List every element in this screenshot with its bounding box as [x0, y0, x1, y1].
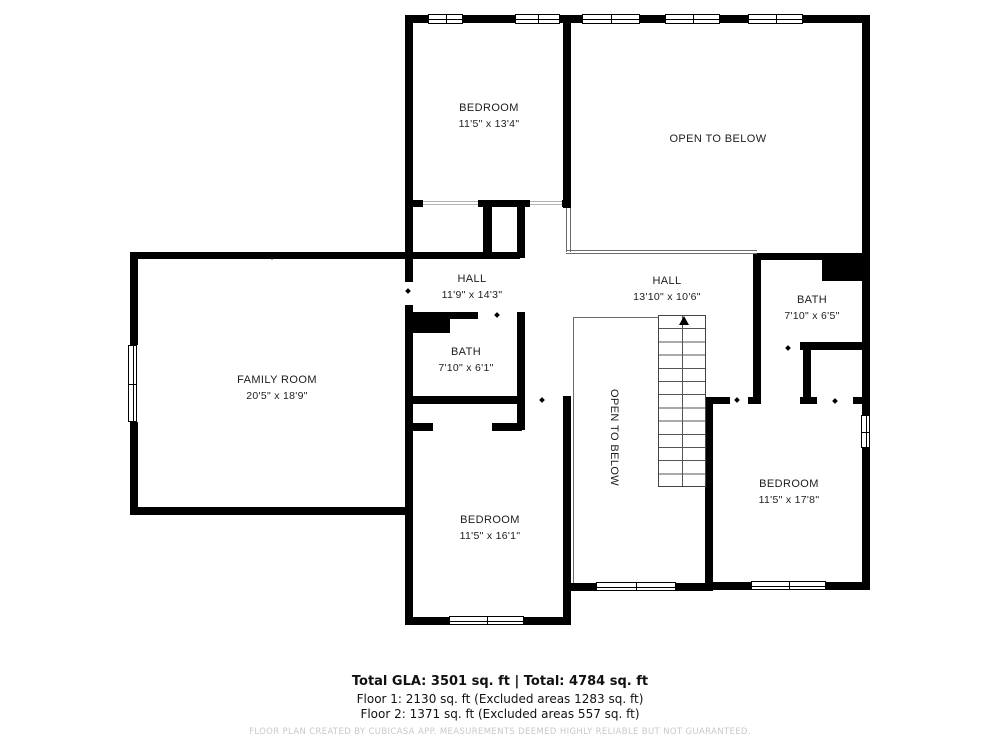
window [449, 616, 524, 625]
wall-segment [562, 200, 571, 207]
wall-segment [822, 253, 868, 281]
room-name: OPEN TO BELOW [606, 368, 622, 508]
stair-divider [682, 316, 683, 486]
wall-segment [405, 305, 413, 515]
floor-plan-canvas: BEDROOM 11'5" x 13'4" OPEN TO BELOW HALL… [0, 0, 1000, 750]
wall-segment [825, 582, 862, 590]
wall-segment [720, 15, 748, 23]
wall-segment [803, 15, 870, 23]
room-label-open-to-below-stairs: OPEN TO BELOW [606, 368, 622, 508]
staircase [658, 315, 706, 487]
door-opening [423, 201, 478, 205]
open-to-below-edge-line [566, 250, 757, 251]
wall-segment [405, 15, 413, 252]
window [596, 582, 676, 591]
wall-segment [411, 423, 433, 431]
room-label-bedroom-right: BEDROOM 11'5" x 17'8" [704, 476, 874, 508]
wall-segment [761, 253, 822, 260]
window [751, 581, 826, 590]
door-swing-marker [494, 312, 500, 318]
wall-segment [411, 396, 525, 404]
window [748, 14, 803, 24]
wall-segment [130, 422, 138, 515]
window [665, 14, 720, 24]
open-to-below-edge-line [570, 208, 571, 252]
wall-segment [492, 423, 522, 431]
door-swing-marker [785, 345, 791, 351]
door-swing-marker [539, 397, 545, 403]
window [861, 415, 870, 448]
wall-segment [130, 252, 520, 259]
room-name: OPEN TO BELOW [633, 131, 803, 147]
open-to-below-edge-line [566, 208, 567, 252]
room-label-bath-middle: BATH 7'10" x 6'1" [381, 344, 551, 376]
wall-segment [411, 312, 478, 319]
room-name: HALL [387, 271, 557, 287]
wall-segment [753, 253, 761, 400]
room-dims: 20'5" x 18'9" [192, 388, 362, 404]
open-to-below-edge-line [566, 253, 757, 254]
room-dims: 11'9" x 14'3" [387, 287, 557, 303]
room-label-open-to-below-top: OPEN TO BELOW [633, 131, 803, 147]
room-label-family-room: FAMILY ROOM 20'5" x 18'9" [192, 372, 362, 404]
wall-segment [463, 15, 515, 23]
stairs-up-arrow-icon [679, 316, 689, 325]
door-swing-marker [734, 397, 740, 403]
room-name: HALL [582, 273, 752, 289]
wall-segment [862, 15, 870, 415]
wall-segment [853, 397, 862, 404]
room-name: BEDROOM [405, 512, 575, 528]
wall-segment [130, 252, 138, 345]
room-name: BATH [727, 292, 897, 308]
total-area-summary: Total GLA: 3501 sq. ft | Total: 4784 sq.… [0, 674, 1000, 689]
wall-segment [748, 397, 761, 404]
wall-segment [523, 617, 571, 625]
wall-segment [803, 350, 811, 397]
room-dims: 11'5" x 16'1" [405, 528, 575, 544]
wall-segment [517, 205, 525, 258]
room-label-bedroom-top: BEDROOM 11'5" x 13'4" [404, 100, 574, 132]
wall-segment [411, 318, 450, 333]
wall-segment [405, 617, 450, 625]
room-label-bedroom-bottom: BEDROOM 11'5" x 16'1" [405, 512, 575, 544]
wall-segment [800, 397, 817, 404]
wall-segment [675, 583, 713, 591]
room-name: BEDROOM [404, 100, 574, 116]
window [428, 14, 463, 24]
window [128, 345, 137, 422]
disclaimer-text: FLOOR PLAN CREATED BY CUBICASA APP. MEAS… [0, 727, 1000, 737]
room-label-bath-right: BATH 7'10" x 6'5" [727, 292, 897, 324]
room-dims: 7'10" x 6'5" [727, 308, 897, 324]
wall-segment [640, 15, 665, 23]
room-dims: 11'5" x 13'4" [404, 116, 574, 132]
room-dims: 11'5" x 17'8" [704, 492, 874, 508]
wall-segment [862, 448, 870, 590]
room-dims: 7'10" x 6'1" [381, 360, 551, 376]
room-name: BATH [381, 344, 551, 360]
door-swing-marker [832, 398, 838, 404]
room-name: BEDROOM [704, 476, 874, 492]
door-opening [530, 201, 562, 205]
floor1-area-summary: Floor 1: 2130 sq. ft (Excluded areas 128… [0, 692, 1000, 706]
room-name: FAMILY ROOM [192, 372, 362, 388]
wall-segment [483, 200, 492, 255]
room-label-hall-left: HALL 11'9" x 14'3" [387, 271, 557, 303]
wall-segment [568, 583, 597, 591]
floor2-area-summary: Floor 2: 1371 sq. ft (Excluded areas 557… [0, 707, 1000, 721]
wall-segment [800, 342, 870, 350]
wall-segment [410, 200, 423, 207]
open-to-below-edge-line [573, 317, 658, 318]
window [582, 14, 640, 24]
window [515, 14, 560, 24]
